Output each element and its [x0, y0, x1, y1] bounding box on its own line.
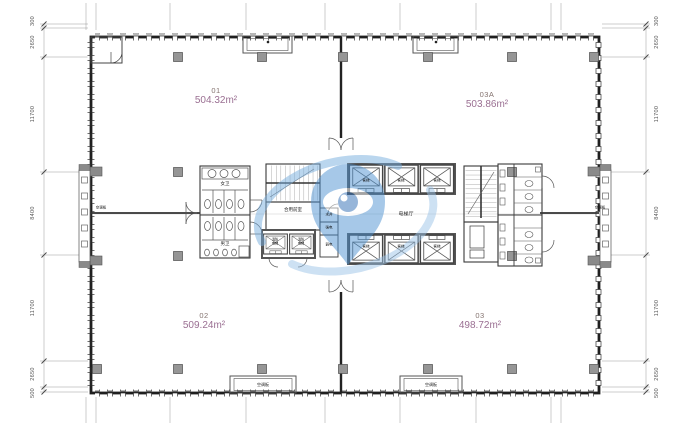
room-label-01: 01 504.32m² — [156, 86, 276, 107]
elevator-hall-label: 电梯厅 — [398, 211, 413, 218]
floor-plan-drawing — [0, 0, 690, 426]
passenger-elevator-label: 客梯 — [434, 245, 441, 250]
room-id: 03 — [420, 311, 540, 320]
dim-right-11700b: 11700 — [654, 300, 660, 316]
dim-right-500: 500 — [654, 388, 660, 398]
room-area: 498.72m² — [420, 320, 540, 332]
dim-right-2650: 2650 — [654, 35, 660, 48]
shaft-label-power: 强电 — [326, 226, 333, 231]
dim-right-8400: 8400 — [654, 206, 660, 219]
toilet-block-right — [498, 164, 542, 266]
passenger-elevator-label: 客梯 — [434, 179, 441, 184]
mens-toilet-label: 男卫 — [221, 241, 230, 247]
corner-room — [91, 37, 122, 63]
ac-panel-right — [600, 165, 611, 268]
dim-left-2650: 2650 — [30, 35, 36, 48]
room-label-03: 03 498.72m² — [420, 311, 540, 332]
dim-left-2650b: 2650 — [30, 367, 36, 380]
room-area: 503.86m² — [427, 99, 547, 111]
dim-left-300: 300 — [30, 16, 36, 26]
dim-right-11700a: 11700 — [654, 106, 660, 122]
passenger-elevator-label: 客梯 — [363, 179, 370, 184]
room-id: 03A — [427, 90, 547, 99]
ac-panel-label: 空调板 — [595, 206, 606, 211]
fire-elevator-label: 消防电梯 — [297, 238, 306, 245]
room-area: 504.32m² — [156, 95, 276, 107]
dim-left-500: 500 — [30, 388, 36, 398]
room-id: 01 — [156, 86, 276, 95]
stair-right-icon — [464, 166, 498, 262]
passenger-elevator-label: 客梯 — [398, 179, 405, 184]
dim-right-2650b: 2650 — [654, 367, 660, 380]
dim-left-11700a: 11700 — [30, 106, 36, 122]
ac-panel-label: 空调板 — [425, 382, 437, 388]
room-area: 509.24m² — [144, 320, 264, 332]
room-label-02: 02 509.24m² — [144, 311, 264, 332]
dim-left-8400: 8400 — [30, 206, 36, 219]
room-label-03A: 03A 503.86m² — [427, 90, 547, 111]
passenger-elevator-label: 客梯 — [398, 245, 405, 250]
womens-toilet-label: 女卫 — [221, 181, 230, 187]
ac-panel-left — [79, 165, 90, 268]
dim-right-300: 300 — [654, 16, 660, 26]
room-id: 02 — [144, 311, 264, 320]
shaft-label-telecom: 弱电 — [326, 243, 333, 248]
passenger-elevator-label: 客梯 — [363, 245, 370, 250]
shaft-label-water: 水井 — [326, 213, 333, 218]
shared-lobby-label: 合用前室 — [284, 207, 302, 213]
ac-panel-label: 空调板 — [257, 382, 269, 388]
ac-panel-label: 空调板 — [96, 206, 107, 211]
fire-elevator-label: 消防电梯 — [271, 238, 280, 245]
dim-left-11700b: 11700 — [30, 300, 36, 316]
floor-plan-canvas: 01 504.32m² 03A 503.86m² 02 509.24m² 03 … — [0, 0, 690, 426]
